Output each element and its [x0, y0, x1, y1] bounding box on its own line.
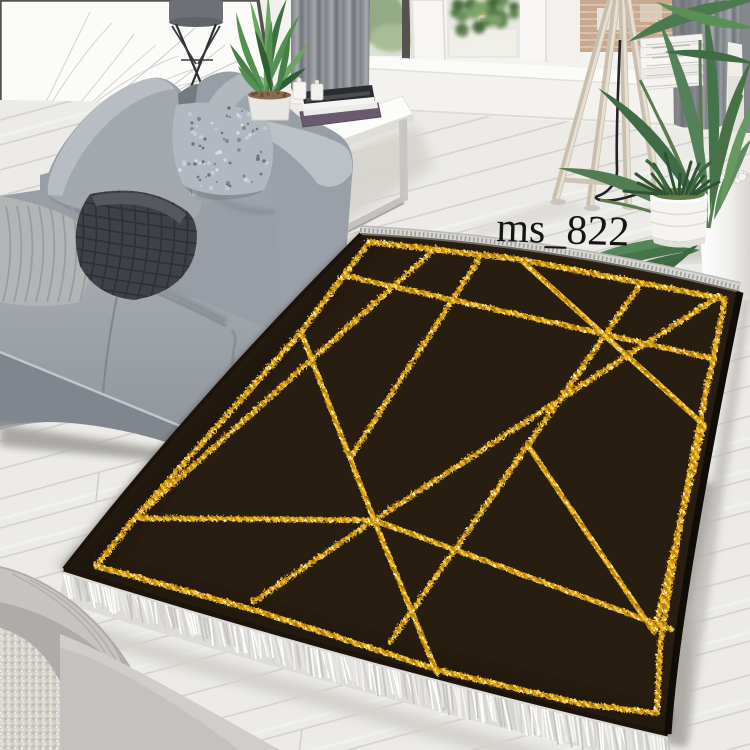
svg-text:ms_822: ms_822 — [496, 205, 631, 256]
